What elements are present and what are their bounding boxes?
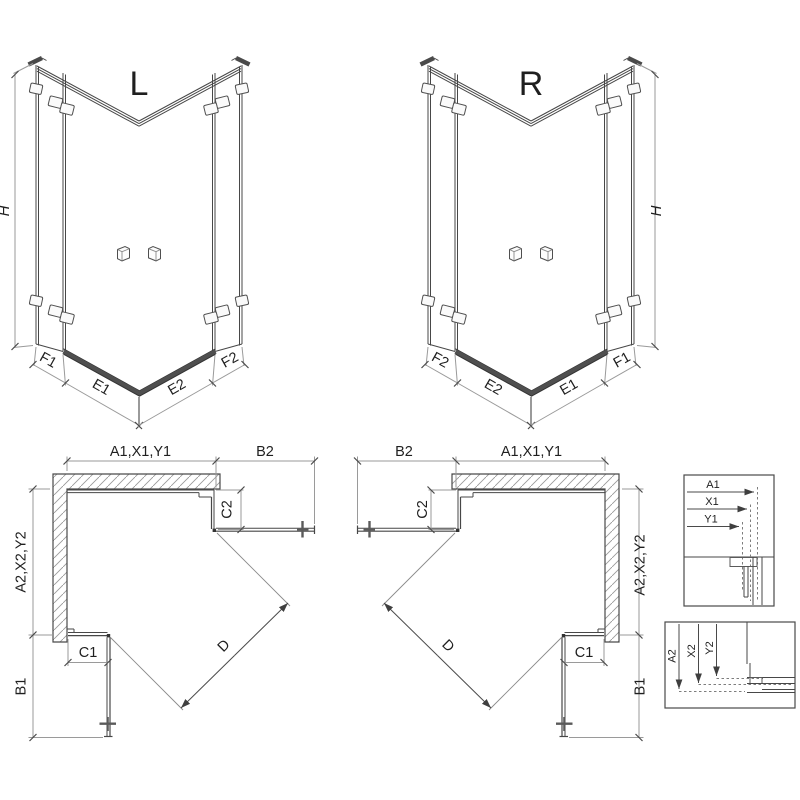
height-dim-label-right: H: [648, 205, 665, 216]
x1-detail-label: X1: [705, 496, 718, 508]
a1-dim-label-left: A1,X1,Y1: [110, 444, 171, 460]
drawing-sheet: L H F1 E1 E2 F2 R H F2 E2 E1 F1 A1,X1,Y1…: [0, 0, 800, 800]
variant-label-right: R: [519, 65, 544, 103]
x2-detail-label: X2: [686, 644, 698, 657]
y1-detail-label: Y1: [704, 514, 717, 526]
b2-dim-label-right: B2: [395, 444, 413, 460]
y2-detail-label: Y2: [704, 641, 716, 654]
plan-view-left: A1,X1,Y1 B2 C2 A2,X2,Y2 C1 B1 D: [14, 444, 319, 741]
c1-dim-label-right: C1: [575, 645, 594, 661]
a2-dim-label-right: A2,X2,Y2: [633, 534, 649, 595]
a1-dim-label-right: A1,X1,Y1: [501, 444, 562, 460]
variant-label-left: L: [130, 65, 149, 103]
a1-detail-label: A1: [706, 479, 719, 491]
hatched-wall: [53, 474, 220, 642]
iso-view-right: R H F2 E2 E1 F1: [421, 58, 666, 429]
height-dim-label-left: H: [0, 205, 13, 216]
shower-enclosure-technical-drawing: L H F1 E1 E2 F2 R H F2 E2 E1 F1 A1,X1,Y1…: [0, 0, 800, 800]
detail-frame: [665, 622, 795, 708]
d-dim-label-right: D: [438, 637, 457, 656]
hatched-wall: [452, 474, 619, 642]
b1-dim-label-right: B1: [633, 678, 649, 696]
c1-dim-label-left: C1: [79, 645, 98, 661]
b2-dim-label-left: B2: [256, 444, 274, 460]
b1-dim-label-left: B1: [14, 678, 30, 696]
a2-dim-label-left: A2,X2,Y2: [14, 531, 30, 592]
d-dim-label-left: D: [215, 637, 234, 656]
iso-view-left: L H F1 E1 E2 F2: [0, 58, 250, 429]
detail-frame: [684, 475, 774, 606]
a2-detail-label: A2: [667, 649, 679, 662]
c2-dim-label-left: C2: [220, 500, 236, 519]
detail-box-widths-top: A1 X1 Y1: [684, 475, 774, 606]
plan-view-right: A1,X1,Y1 B2 C2 A2,X2,Y2 C1 B1 D: [354, 444, 649, 741]
c2-dim-label-right: C2: [415, 500, 431, 519]
detail-box-widths-side: A2 X2 Y2: [665, 622, 795, 708]
